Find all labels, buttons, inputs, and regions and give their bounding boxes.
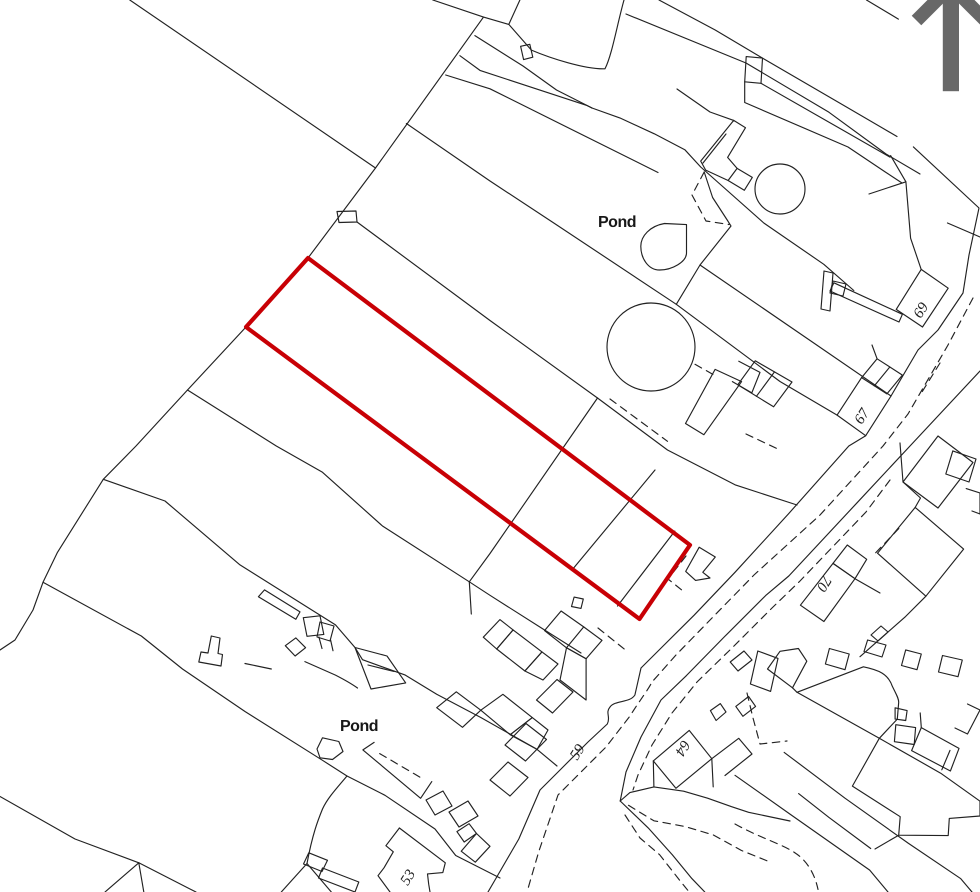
svg-text:Pond: Pond — [340, 718, 378, 735]
svg-text:Pond: Pond — [598, 214, 636, 231]
